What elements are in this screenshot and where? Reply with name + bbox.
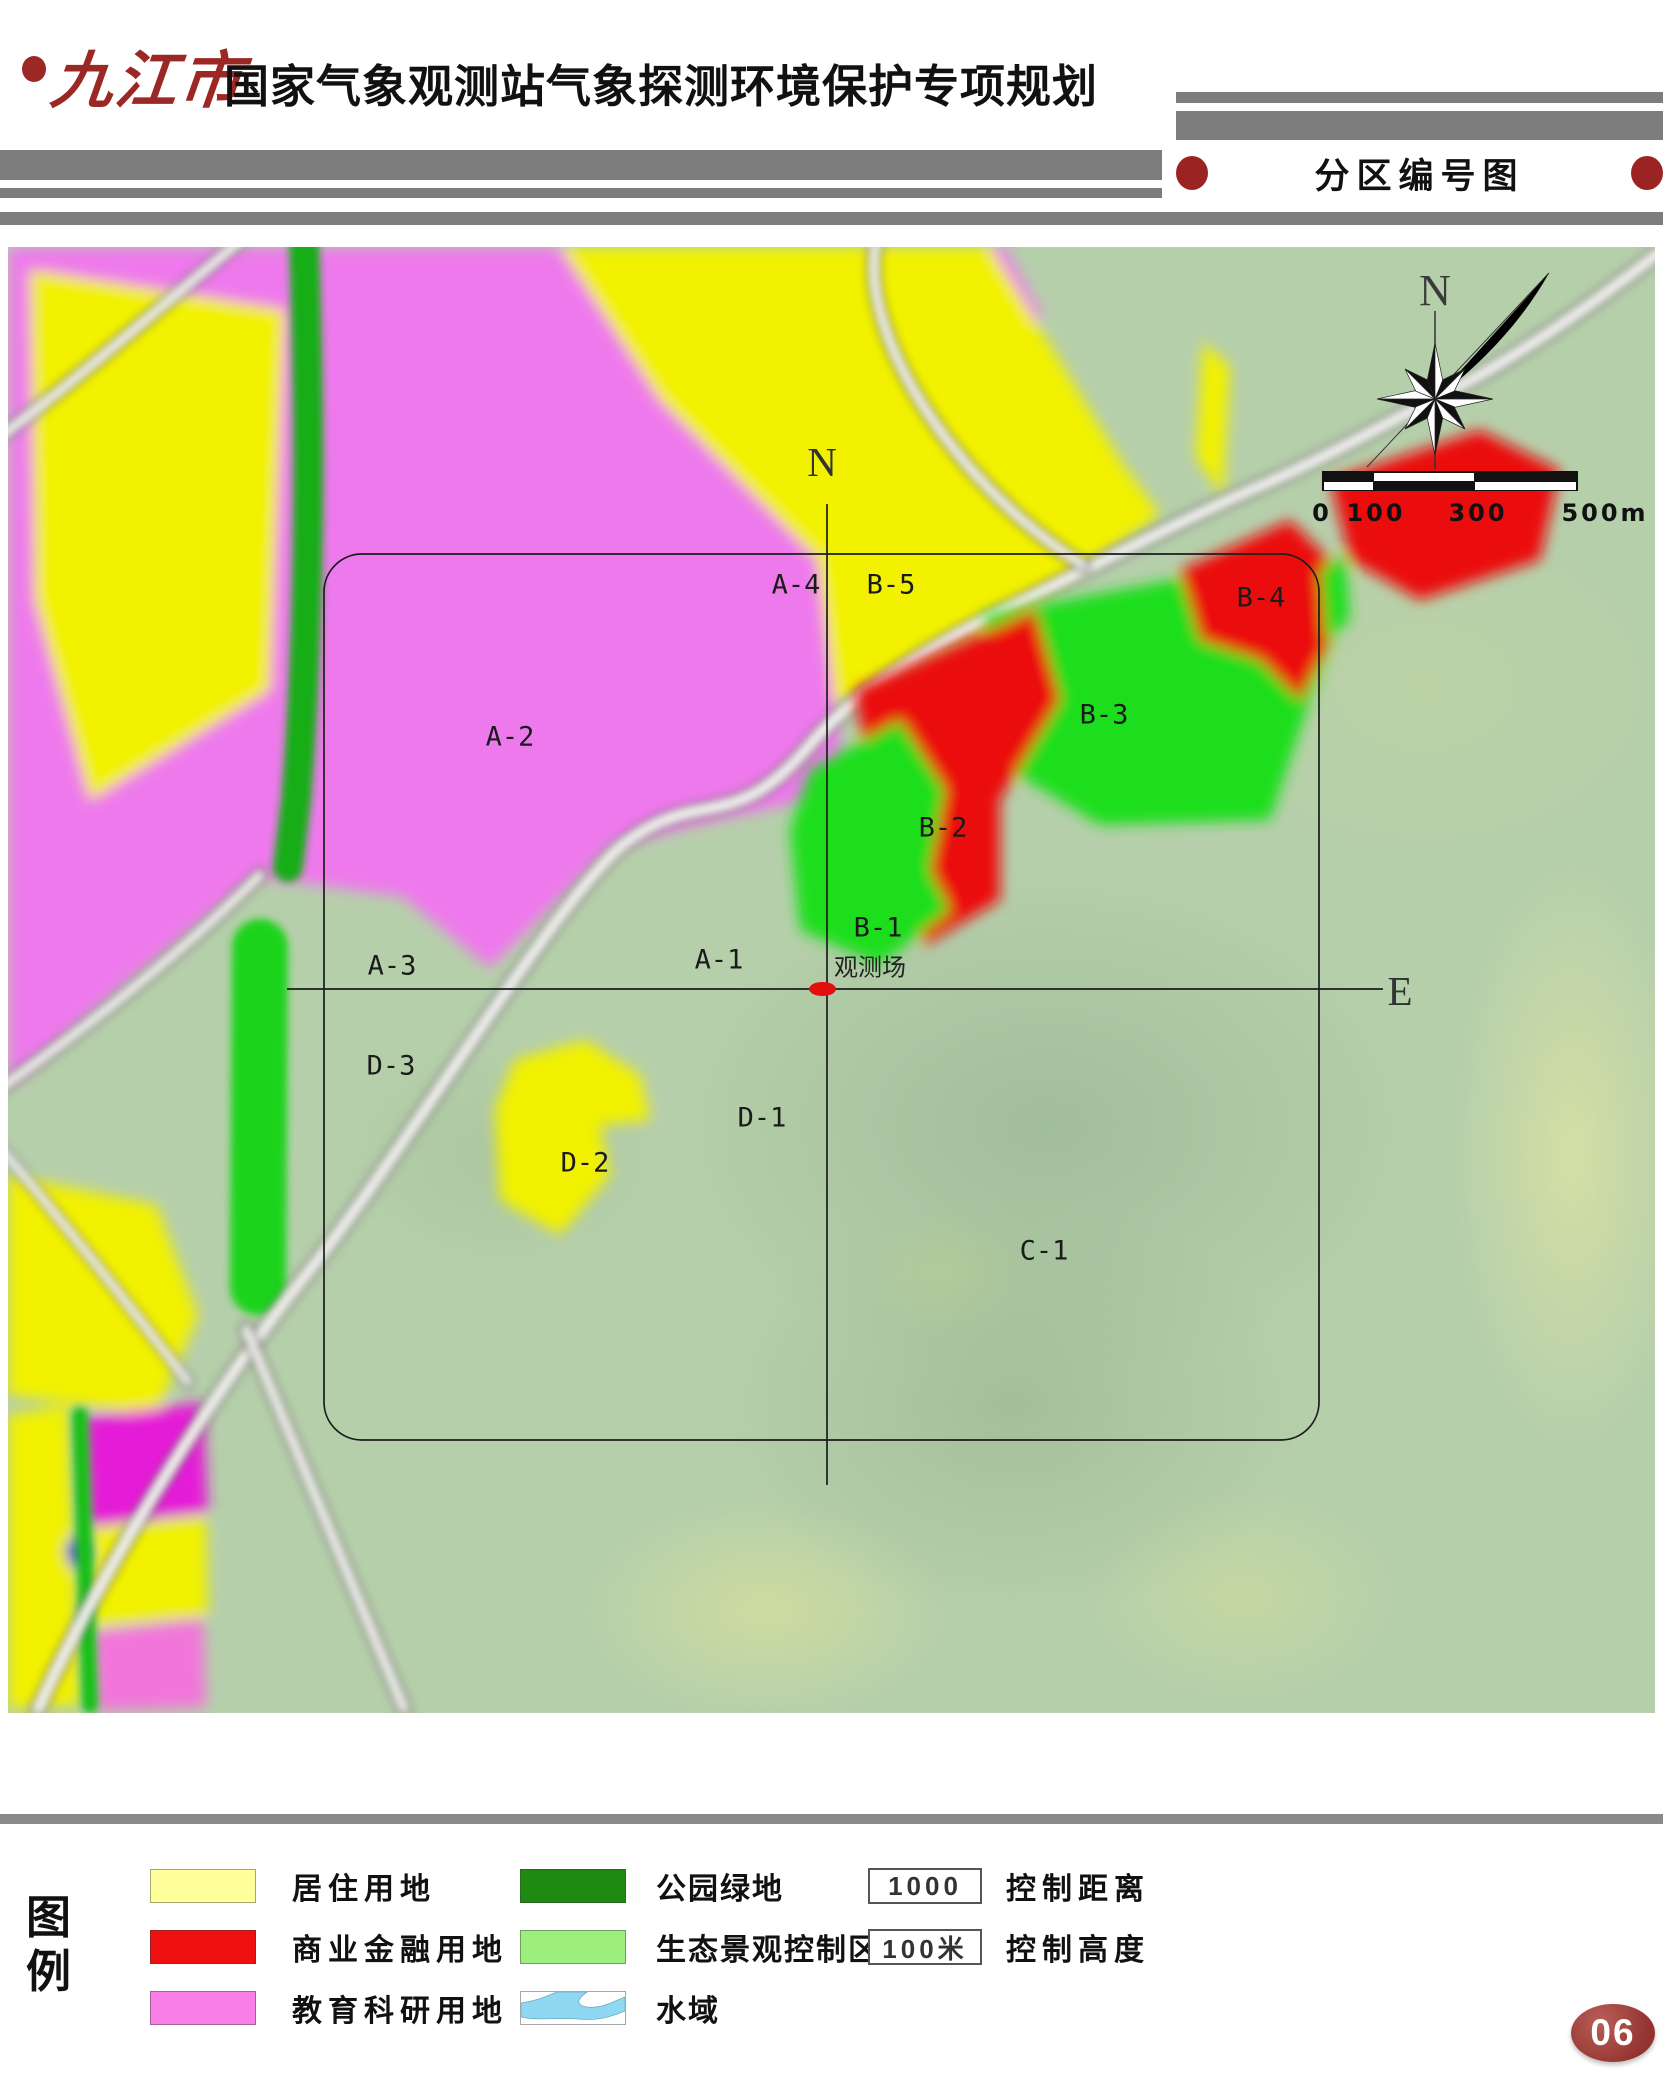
legend-zone-label: 生态景观控制区 — [656, 1925, 880, 1969]
map-label-zone-b4: B-4 — [1237, 583, 1286, 614]
brand-dot-icon — [22, 56, 46, 82]
legend-land-label: 居住用地 — [292, 1864, 436, 1908]
legend-zone-swatch — [520, 1930, 626, 1964]
control-value-box: 100米 — [868, 1929, 982, 1965]
control-value-label: 控制高度 — [1006, 1925, 1150, 1969]
legend-control-row: 100米控制高度 — [868, 1929, 1150, 1965]
legend-zone-row: 公园绿地 — [520, 1869, 880, 1903]
section-title: 分区编号图 — [1314, 148, 1524, 199]
map-label-zone-a3: A-3 — [368, 951, 417, 982]
legend-landuse-column: 居住用地商业金融用地教育科研用地 — [150, 1869, 508, 2052]
map-label-zone-a2: A-2 — [486, 722, 535, 753]
legend-land-row: 商业金融用地 — [150, 1930, 508, 1964]
map-label-zone-b2: B-2 — [919, 813, 968, 844]
legend-zone-swatch — [520, 1991, 626, 2025]
map-label-zone-d3: D-3 — [367, 1051, 416, 1082]
header-bar-right-thin — [1176, 92, 1663, 103]
legend-land-row: 教育科研用地 — [150, 1991, 508, 2025]
page-number-badge: 06 — [1571, 2004, 1655, 2062]
legend-zone-label: 水域 — [656, 1986, 720, 2030]
header-bar-left-thin — [0, 188, 1162, 198]
section-dot-left-icon — [1176, 156, 1208, 190]
map-label-axis-e: E — [1387, 967, 1412, 1015]
legend-land-swatch — [150, 1991, 256, 2025]
zoning-map: N 0100300500m NEA-2A-4B-5B-4B-3B-2B-1A-3… — [8, 247, 1655, 1713]
map-label-zone-b3: B-3 — [1080, 700, 1129, 731]
map-label-zone-b5: B-5 — [867, 570, 916, 601]
water-swatch-icon — [521, 1992, 625, 2024]
legend-zone-row: 生态景观控制区 — [520, 1930, 880, 1964]
section-title-row: 分区编号图 — [1176, 152, 1663, 194]
map-label-station: 观测场 — [834, 948, 906, 983]
map-label-zone-d2: D-2 — [561, 1148, 610, 1179]
legend-land-row: 居住用地 — [150, 1869, 508, 1903]
legend-land-swatch — [150, 1869, 256, 1903]
map-labels-layer: NEA-2A-4B-5B-4B-3B-2B-1A-3A-1D-3D-1D-2C-… — [8, 247, 1655, 1713]
legend-zone-row: 水域 — [520, 1991, 880, 2025]
header-bar-left-thick — [0, 150, 1162, 180]
section-dot-right-icon — [1631, 156, 1663, 190]
legend-title: 图例 — [26, 1891, 78, 1999]
header-bar-full — [0, 212, 1663, 225]
observation-station-dot — [809, 982, 836, 996]
control-value-box: 1000 — [868, 1868, 982, 1904]
map-label-zone-a1: A-1 — [695, 945, 744, 976]
legend-land-swatch — [150, 1930, 256, 1964]
map-label-zone-c1: C-1 — [1020, 1236, 1069, 1267]
legend-zone-swatch — [520, 1869, 626, 1903]
legend-control-row: 1000控制距离 — [868, 1868, 1150, 1904]
brand-logo: 九江市 — [47, 30, 248, 120]
legend-zone-label: 公园绿地 — [656, 1864, 784, 1908]
legend-zone-column: 公园绿地生态景观控制区水域 — [520, 1869, 880, 2052]
map-label-zone-b1: B-1 — [854, 913, 903, 944]
legend-land-label: 商业金融用地 — [292, 1925, 508, 1969]
legend-control-column: 1000控制距离100米控制高度 — [868, 1868, 1150, 1990]
page-title: 国家气象观测站气象探测环境保护专项规划 — [224, 50, 1098, 115]
map-label-axis-n: N — [807, 438, 837, 486]
map-label-zone-d1: D-1 — [738, 1103, 787, 1134]
map-label-zone-a4: A-4 — [772, 570, 821, 601]
header-bar-right-thick — [1176, 111, 1663, 140]
control-value-label: 控制距离 — [1006, 1864, 1150, 1908]
legend-land-label: 教育科研用地 — [292, 1986, 508, 2030]
legend-separator-bar — [0, 1814, 1663, 1824]
